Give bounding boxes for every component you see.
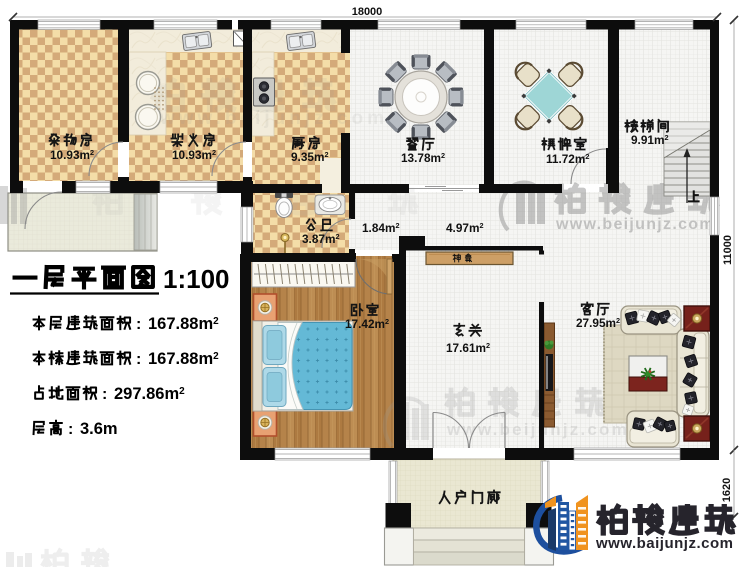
svg-text:17.61m2: 17.61m2 [446,341,490,355]
svg-text:3.6m: 3.6m [80,420,118,438]
svg-text:4.97m2: 4.97m2 [446,221,484,235]
svg-text:www.beijunjz.com: www.beijunjz.com [159,108,388,129]
svg-text::: : [136,316,141,333]
svg-text:167.88m2: 167.88m2 [148,315,219,333]
svg-text:297.86m2: 297.86m2 [114,385,185,403]
svg-text:3.87m2: 3.87m2 [302,232,340,246]
svg-text:1.84m2: 1.84m2 [362,221,400,235]
svg-text:18000: 18000 [352,6,383,18]
svg-text:27.95m2: 27.95m2 [576,316,620,330]
svg-text:9.91m2: 9.91m2 [631,133,669,147]
svg-text:11.72m2: 11.72m2 [546,152,589,166]
svg-text:9.35m2: 9.35m2 [291,150,329,164]
svg-text:10.93m2: 10.93m2 [172,148,216,162]
svg-text:13.78m2: 13.78m2 [401,151,445,165]
svg-text:1:100: 1:100 [163,264,230,294]
svg-text:167.88m2: 167.88m2 [148,350,219,368]
svg-text:11000: 11000 [722,235,734,265]
svg-text:17.42m2: 17.42m2 [345,317,389,331]
svg-text::: : [68,421,73,438]
svg-text:www.beijunjz.com: www.beijunjz.com [555,216,715,233]
svg-text:www.baijunjz.com: www.baijunjz.com [595,535,733,552]
svg-text:10.93m2: 10.93m2 [50,148,94,162]
svg-text::: : [102,386,107,403]
svg-text:www.beijunjz.com: www.beijunjz.com [446,420,629,439]
svg-text:1620: 1620 [721,478,733,502]
svg-text::: : [136,351,141,368]
